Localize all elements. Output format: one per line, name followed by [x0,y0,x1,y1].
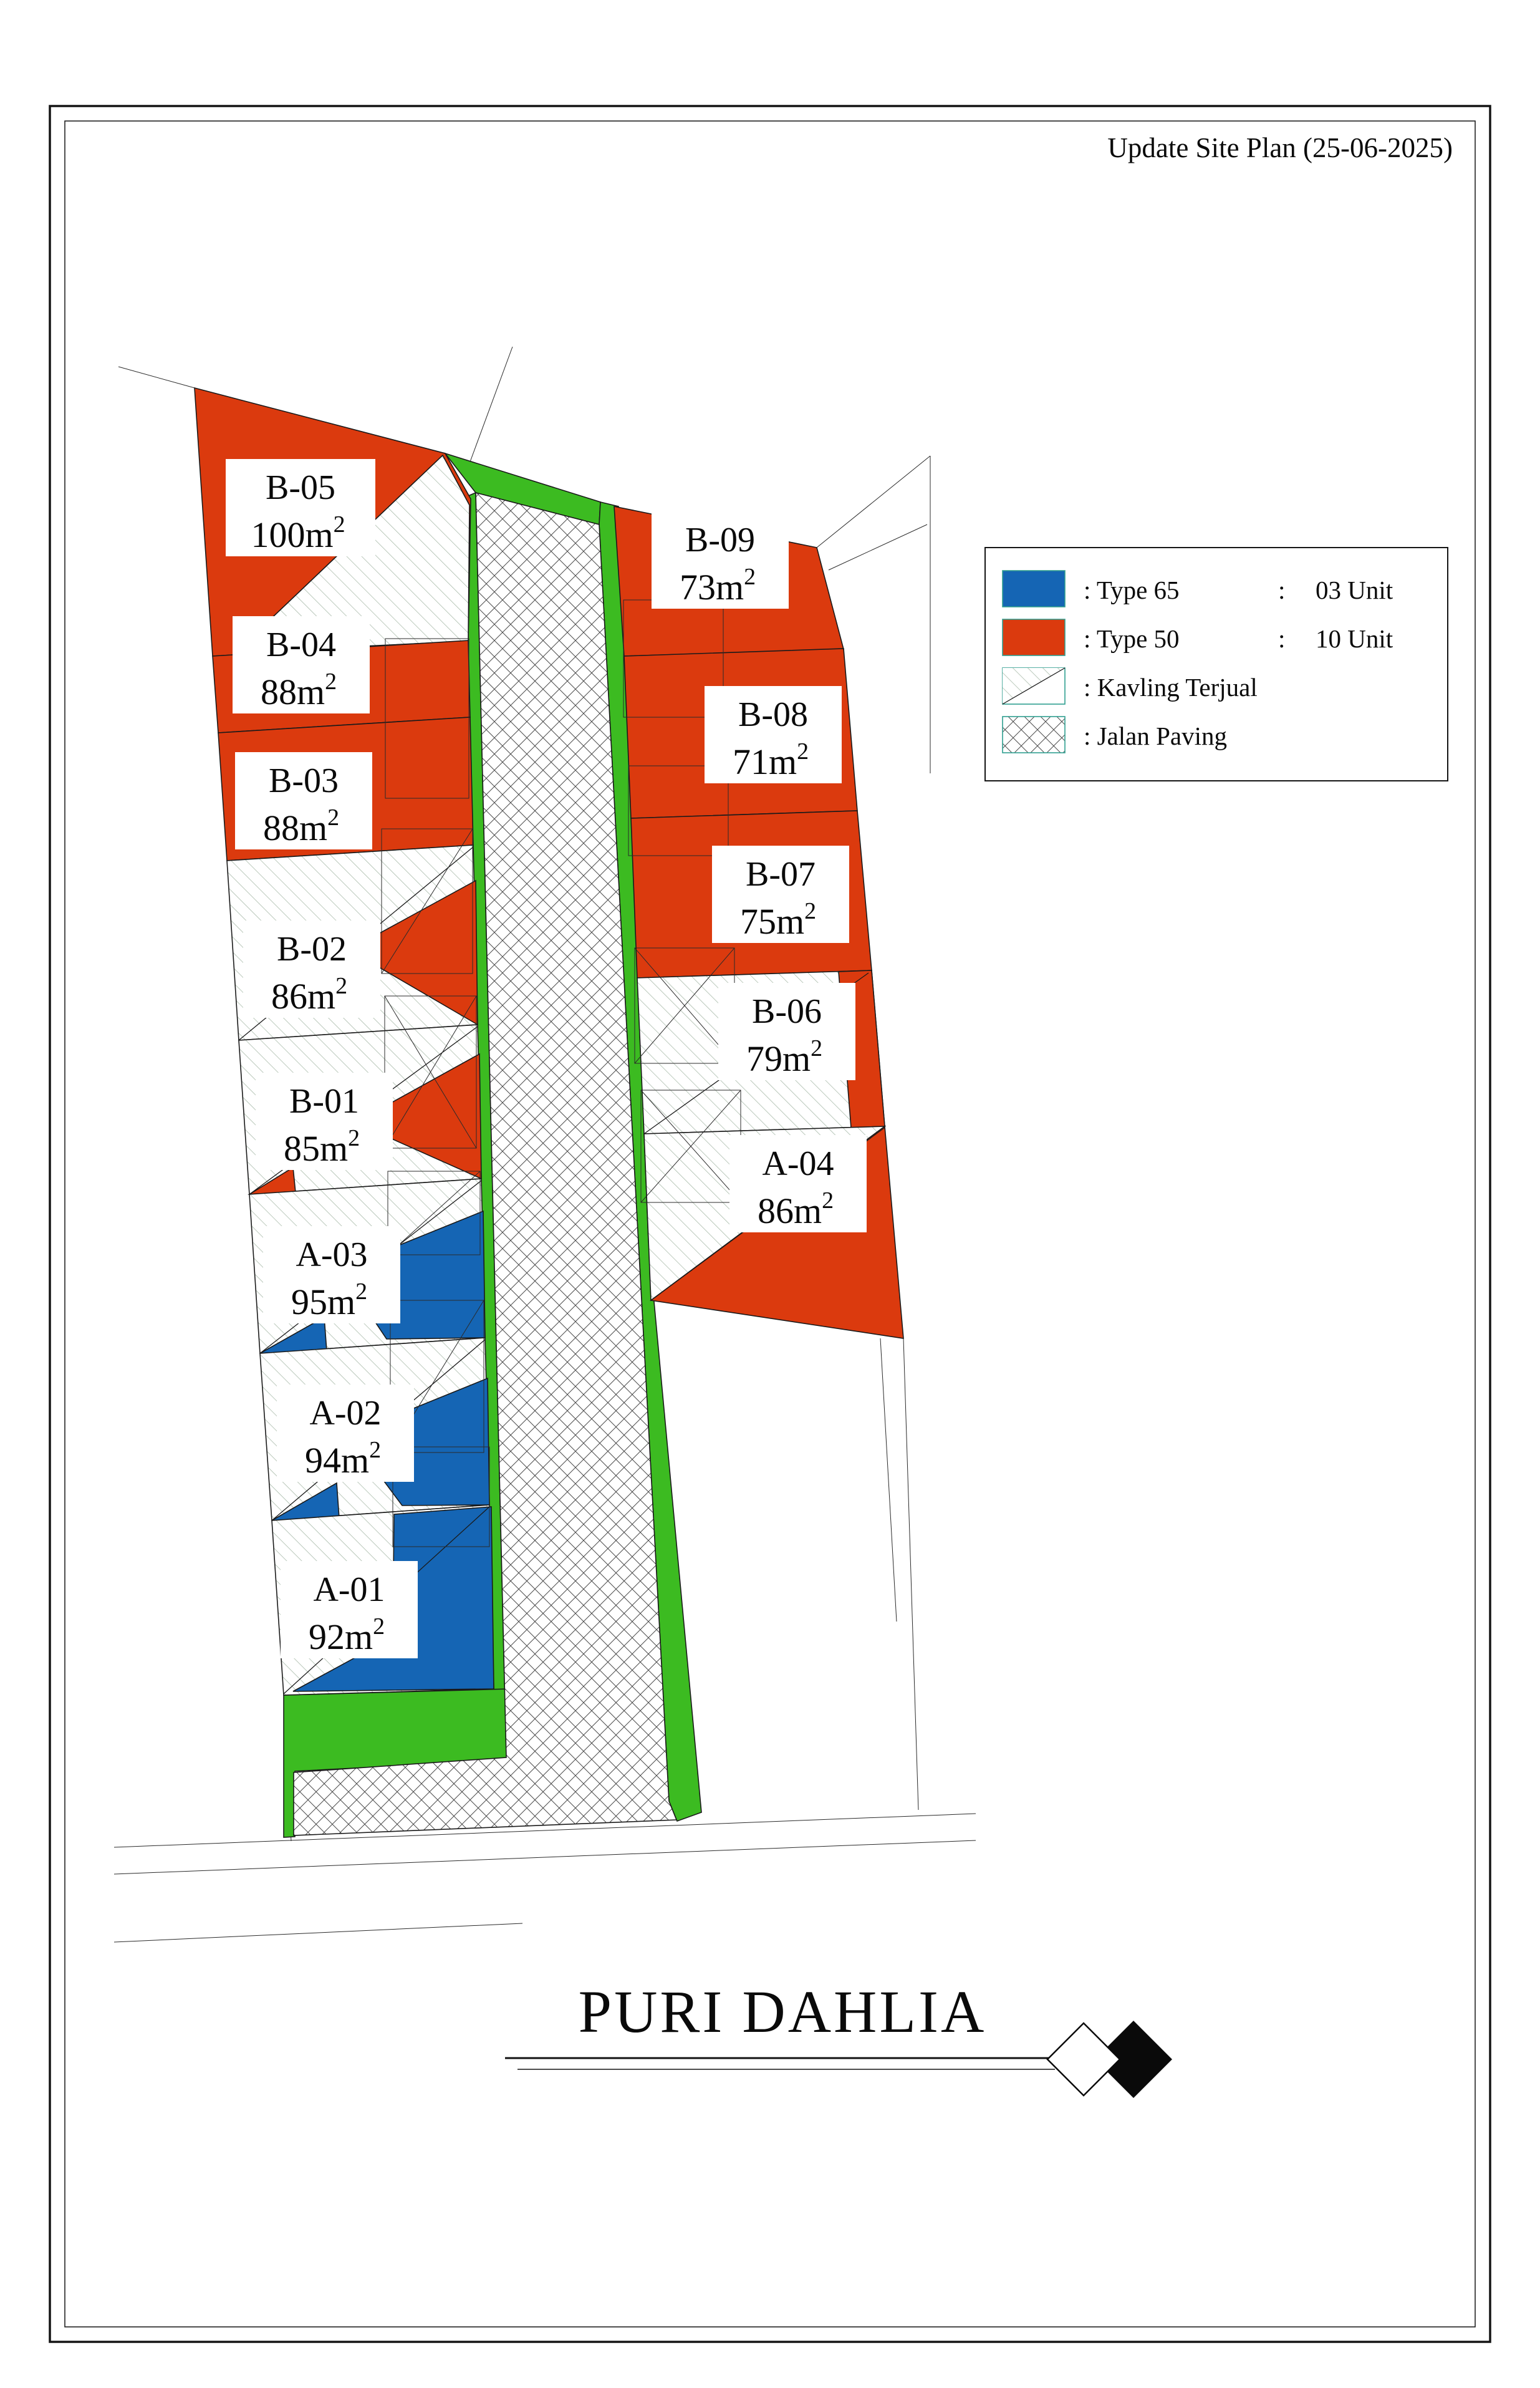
legend-label-kavling-terjual: : Kavling Terjual [1084,673,1258,702]
legend-count-type65: 03 Unit [1316,576,1393,604]
lot-label-id: B-07 [746,855,816,894]
legend-label-type50: : Type 50 [1084,624,1180,653]
boundary-line-top-center [465,347,513,475]
boundary-line-right-lower-2 [880,1338,897,1622]
lot-label-id: A-03 [296,1235,367,1274]
street-line-2 [114,1840,976,1874]
jalan-paving-swatch [1003,717,1065,753]
legend-separator-type65: : [1278,576,1285,604]
site-plan-canvas: Update Site Plan (25-06-2025) [0,0,1540,2388]
footer: PURI DAHLIA [505,1978,1172,2098]
boundary-line-top-right-1 [817,456,930,548]
lot-label-id: B-06 [752,992,822,1031]
legend-label-type65: : Type 65 [1084,576,1180,604]
type65-swatch [1003,571,1065,607]
type50-swatch [1003,619,1065,655]
lot-label-id: B-03 [269,761,339,800]
lot-label-id: A-02 [309,1394,381,1433]
lot-label-id: B-08 [738,695,808,734]
boundary-line-top-left [118,367,195,388]
legend: : Type 65 : 03 Unit : Type 50 : 10 Unit … [985,548,1448,781]
lot-label-id: A-04 [762,1144,834,1183]
lot-label-id: B-02 [277,930,347,969]
lot-label-id: B-01 [289,1082,359,1121]
lot-label-id: A-01 [313,1570,385,1609]
street-line-3 [114,1923,522,1942]
legend-count-type50: 10 Unit [1316,624,1393,653]
lot-label-id: B-09 [685,521,755,559]
logo-diamond-outline [1047,2023,1120,2096]
site-drawing: B-05 100m2 B-04 88m2 B-03 88m2 B-02 86m2… [114,347,976,1942]
legend-separator-type50: : [1278,624,1285,653]
site-plan-page: Update Site Plan (25-06-2025) [0,0,1540,2388]
page-title: Update Site Plan (25-06-2025) [1107,132,1453,163]
boundary-line-right-lower [903,1338,918,1810]
boundary-line-top-right-2 [829,524,927,570]
lot-label-area: 100m2 [251,511,345,555]
lot-label-id: B-04 [266,626,336,664]
project-name: PURI DAHLIA [579,1978,987,2045]
legend-label-jalan-paving: : Jalan Paving [1084,722,1227,750]
lot-label-id: B-05 [266,468,335,507]
kavling-terjual-swatch [1003,668,1065,704]
